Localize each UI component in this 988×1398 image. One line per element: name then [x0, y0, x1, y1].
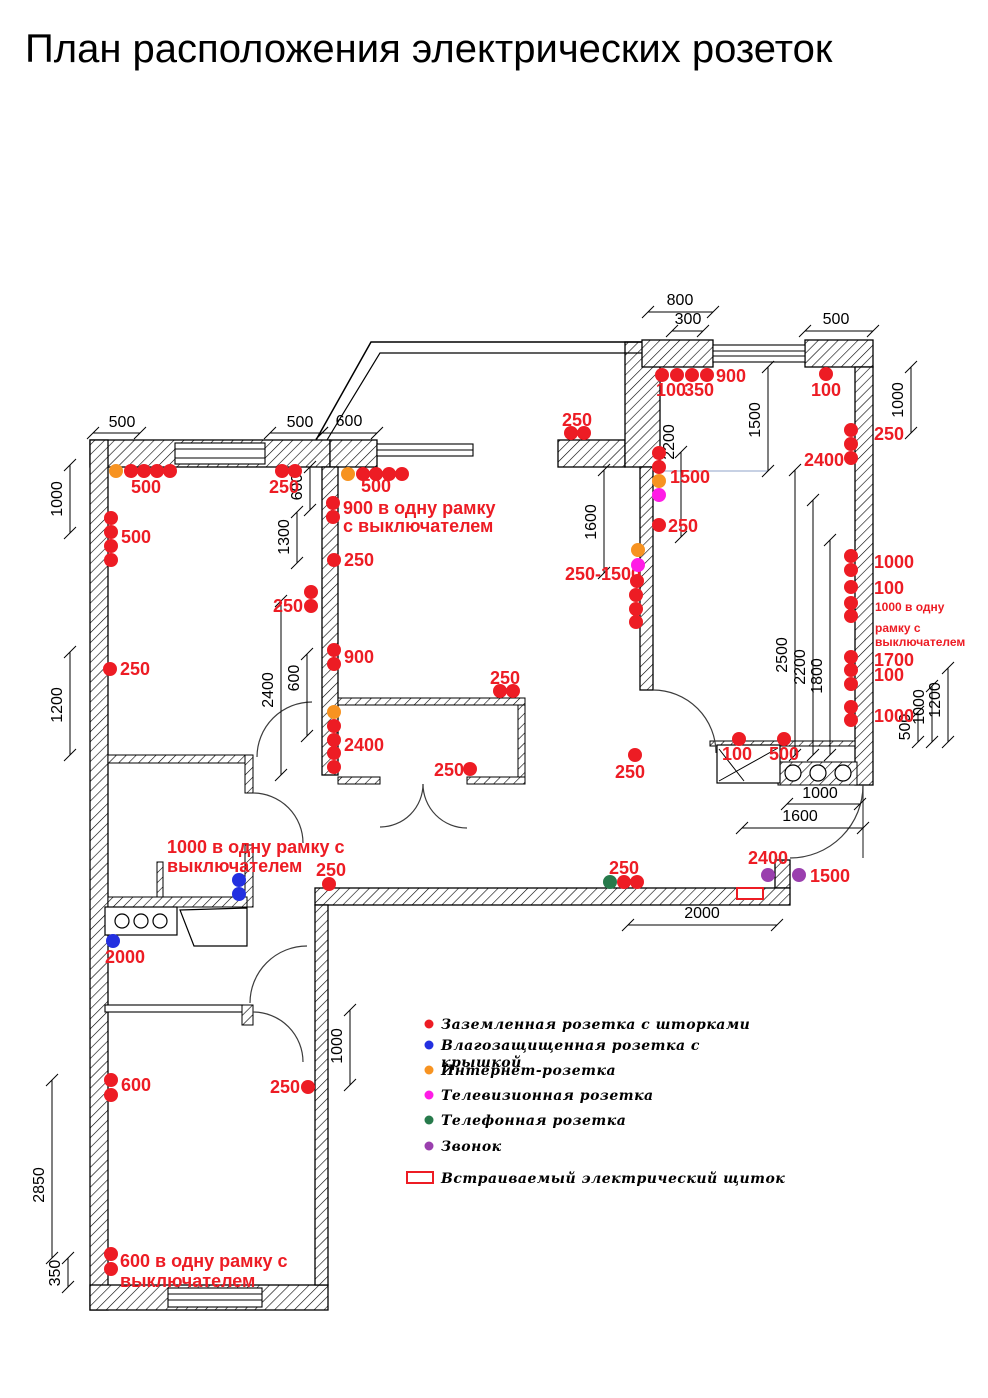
outlet-marker-grounded-socket: [652, 460, 666, 474]
door-arc: [257, 702, 312, 757]
wall-segment: [805, 340, 873, 367]
outlet-height-label: 1000 в одну рамку с: [167, 837, 345, 857]
balcony-outline: [316, 342, 642, 440]
outlet-marker-grounded-socket: [104, 1247, 118, 1261]
dimension-text: 1500: [747, 402, 764, 438]
outlet-marker-grounded-socket: [844, 650, 858, 664]
outlet-marker-grounded-socket: [124, 464, 138, 478]
outlet-marker-grounded-socket: [655, 368, 669, 382]
outlet-marker-grounded-socket: [326, 510, 340, 524]
balcony-outline-inner: [327, 353, 642, 440]
window: [713, 345, 805, 362]
outlet-height-label: 250: [316, 860, 346, 880]
legend-label: Встраиваемый электрический щиток: [440, 1170, 785, 1187]
outlet-marker-grounded-socket: [844, 437, 858, 451]
outlet-height-label: 900: [716, 366, 746, 386]
outlet-marker-grounded-socket: [577, 426, 591, 440]
wall-segment: [558, 440, 625, 467]
outlet-marker-grounded-socket: [104, 1088, 118, 1102]
outlet-height-label: 350: [684, 380, 714, 400]
outlet-marker-grounded-socket: [382, 467, 396, 481]
outlet-height-label: 250: [273, 596, 303, 616]
outlet-marker-internet-socket: [652, 474, 666, 488]
legend-swatch-phone-socket: [425, 1116, 434, 1125]
outlet-marker-grounded-socket: [844, 563, 858, 577]
outlet-marker-grounded-socket: [327, 746, 341, 760]
outlet-marker-grounded-socket: [327, 760, 341, 774]
outlet-marker-internet-socket: [327, 705, 341, 719]
dimension-text: 2200: [792, 649, 809, 685]
closet-wall: [518, 705, 525, 777]
door-arc: [653, 690, 716, 753]
outlet-marker-grounded-socket: [327, 733, 341, 747]
outlet-marker-grounded-socket: [163, 464, 177, 478]
legend-label: Телефонная розетка: [441, 1113, 626, 1129]
outlet-marker-internet-socket: [341, 467, 355, 481]
outlet-marker-grounded-socket: [356, 467, 370, 481]
dimension-text: 1000: [802, 785, 838, 802]
outlet-height-label: 250-1500: [565, 564, 641, 584]
legend: Заземленная розетка с шторкамиВлагозащищ…: [407, 1017, 785, 1187]
dimension-text: 600: [286, 665, 303, 692]
outlet-height-label: с выключателем: [343, 516, 493, 536]
dimension-text: 1000: [329, 1028, 346, 1064]
outlet-marker-grounded-socket: [104, 1262, 118, 1276]
outlet-marker-grounded-socket: [327, 643, 341, 657]
dimension-text: 500: [287, 414, 314, 431]
dimension-text: 1000: [890, 382, 907, 418]
dimension-text: 500: [109, 414, 136, 431]
outlet-marker-doorbell: [792, 868, 806, 882]
outlet-marker-grounded-socket: [777, 732, 791, 746]
wall-segment: [315, 905, 328, 1285]
outlet-height-label: 250: [120, 659, 150, 679]
outlet-marker-internet-socket: [631, 543, 645, 557]
outlet-marker-grounded-socket: [630, 875, 644, 889]
outlet-marker-grounded-socket: [493, 684, 507, 698]
dimension-text: 2500: [774, 637, 791, 673]
door-arc: [250, 946, 307, 1003]
outlet-marker-moisture-protected-socket: [232, 873, 246, 887]
dimension-text: 300: [675, 311, 702, 328]
outlet-marker-grounded-socket: [304, 599, 318, 613]
outlet-marker-grounded-socket: [506, 684, 520, 698]
closet-wall: [338, 777, 380, 784]
outlet-height-label: 500: [769, 744, 799, 764]
radiator-circle: [785, 765, 801, 781]
outlet-marker-phone-socket: [603, 875, 617, 889]
outlet-height-label: 600 в одну рамку с: [120, 1251, 288, 1271]
outlet-marker-grounded-socket: [617, 875, 631, 889]
page-title: План расположения электрических розеток: [25, 27, 833, 71]
outlet-marker-grounded-socket: [326, 496, 340, 510]
dimension-text: 1200: [927, 682, 944, 718]
wall-segment: [315, 888, 790, 905]
outlet-marker-tv-socket: [652, 488, 666, 502]
outlet-marker-moisture-protected-socket: [232, 887, 246, 901]
outlet-marker-grounded-socket: [327, 657, 341, 671]
outlet-height-label: 900 в одну рамку: [343, 498, 496, 518]
door-arc: [253, 793, 303, 843]
outlet-marker-grounded-socket: [288, 464, 302, 478]
stove-burner: [115, 914, 129, 928]
outlet-height-label: выключателем: [167, 856, 302, 876]
stove-burner: [153, 914, 167, 928]
outlet-height-label: 1500: [810, 866, 850, 886]
legend-swatch-grounded-socket: [425, 1020, 434, 1029]
outlet-height-label: выключателем: [120, 1271, 255, 1291]
outlet-height-label: 600: [121, 1075, 151, 1095]
outlet-marker-grounded-socket: [844, 713, 858, 727]
sink: [180, 908, 247, 946]
legend-swatch-moisture-protected-socket: [425, 1041, 434, 1050]
dimension-text: 1800: [809, 658, 826, 694]
window: [175, 443, 265, 464]
outlet-marker-grounded-socket: [844, 663, 858, 677]
dimension-text: 1000: [49, 481, 66, 517]
radiator-circle: [835, 765, 851, 781]
outlet-marker-tv-socket: [631, 558, 645, 572]
dimension-text: 800: [667, 292, 694, 309]
wall-stub: [157, 862, 163, 897]
outlet-marker-grounded-socket: [630, 574, 644, 588]
legend-label: Звонок: [441, 1139, 502, 1155]
dimension-text: 1300: [276, 519, 293, 555]
outlet-height-label: 250: [615, 762, 645, 782]
electrical-panel: [737, 888, 763, 899]
outlet-marker-grounded-socket: [137, 464, 151, 478]
outlet-marker-grounded-socket: [104, 525, 118, 539]
outlet-height-label: 2400: [804, 450, 844, 470]
double-door-arc: [423, 784, 467, 828]
wall-segment: [642, 340, 713, 367]
dimension-text: 1600: [782, 808, 818, 825]
outlet-marker-grounded-socket: [844, 549, 858, 563]
outlet-height-label: выключателем: [875, 635, 965, 649]
outlet-marker-grounded-socket: [844, 423, 858, 437]
outlet-marker-moisture-protected-socket: [106, 934, 120, 948]
outlet-marker-grounded-socket: [629, 615, 643, 629]
outlet-height-label: 250: [434, 760, 464, 780]
outlet-marker-grounded-socket: [629, 588, 643, 602]
outlet-marker-grounded-socket: [275, 464, 289, 478]
outlet-height-label: 250: [344, 550, 374, 570]
outlet-marker-grounded-socket: [844, 609, 858, 623]
outlet-height-label: 250: [270, 1077, 300, 1097]
outlet-marker-grounded-socket: [463, 762, 477, 776]
legend-label: Влагозащищенная розетка с: [440, 1038, 700, 1054]
door-arc: [253, 1012, 303, 1062]
outlet-height-label: 250: [668, 516, 698, 536]
outlet-marker-grounded-socket: [844, 451, 858, 465]
outlet-marker-grounded-socket: [104, 511, 118, 525]
outlet-marker-grounded-socket: [732, 732, 746, 746]
outlet-height-label: 100: [874, 665, 904, 685]
floor-plan: План расположения электрических розеток: [0, 0, 988, 1398]
partition: [105, 1005, 243, 1012]
outlet-height-label: 100: [722, 744, 752, 764]
legend-swatch-internet-socket: [425, 1066, 434, 1075]
outlet-marker-grounded-socket: [369, 467, 383, 481]
dimension-text: 350: [47, 1260, 64, 1287]
legend-panel-swatch: [407, 1172, 433, 1183]
outlet-marker-grounded-socket: [652, 446, 666, 460]
radiator-circle: [810, 765, 826, 781]
outlet-marker-grounded-socket: [844, 700, 858, 714]
outlet-marker-grounded-socket: [395, 467, 409, 481]
outlet-height-label: 500: [131, 477, 161, 497]
dimension-text: 600: [336, 413, 363, 430]
dimension-text: 1600: [583, 504, 600, 540]
outlet-marker-grounded-socket: [844, 596, 858, 610]
outlet-height-label: 100: [656, 380, 686, 400]
wall-segment: [90, 440, 108, 1310]
legend-label: Заземленная розетка с шторками: [441, 1017, 750, 1033]
outlet-marker-grounded-socket: [150, 464, 164, 478]
dimension-text: 2850: [31, 1167, 48, 1203]
outlet-height-label: 1500: [670, 467, 710, 487]
outlet-height-label: 100: [874, 578, 904, 598]
outlet-marker-grounded-socket: [685, 368, 699, 382]
stove-burner: [134, 914, 148, 928]
outlet-marker-grounded-socket: [103, 662, 117, 676]
outlet-height-label: 2400: [748, 848, 788, 868]
outlet-height-label: 100: [811, 380, 841, 400]
outlet-height-label: 1000: [874, 706, 914, 726]
legend-label: Телевизионная розетка: [441, 1088, 654, 1104]
outlet-marker-grounded-socket: [628, 748, 642, 762]
outlet-marker-grounded-socket: [819, 367, 833, 381]
outlet-height-label: рамку с: [875, 621, 921, 635]
outlet-height-label: 1000: [874, 552, 914, 572]
outlet-marker-grounded-socket: [327, 553, 341, 567]
outlet-marker-doorbell: [761, 868, 775, 882]
outlet-height-label: 900: [344, 647, 374, 667]
dimension-text: 1200: [49, 687, 66, 723]
dimension-text: 500: [823, 311, 850, 328]
dimension-text: 2000: [684, 905, 720, 922]
wall-segment: [245, 755, 253, 793]
outlet-marker-grounded-socket: [629, 602, 643, 616]
wall-segment: [108, 755, 247, 763]
outlet-height-label: 250: [269, 477, 299, 497]
outlet-marker-grounded-socket: [700, 368, 714, 382]
outlet-marker-grounded-socket: [104, 539, 118, 553]
outlet-marker-internet-socket: [109, 464, 123, 478]
legend-swatch-doorbell: [425, 1142, 434, 1151]
outlet-height-label: 500: [121, 527, 151, 547]
outlet-marker-grounded-socket: [104, 553, 118, 567]
outlet-marker-grounded-socket: [844, 677, 858, 691]
outlet-height-label: 250: [874, 424, 904, 444]
outlet-marker-grounded-socket: [301, 1080, 315, 1094]
outlet-marker-grounded-socket: [322, 877, 336, 891]
legend-swatch-tv-socket: [425, 1091, 434, 1100]
outlet-marker-grounded-socket: [670, 368, 684, 382]
walls-layer: [90, 340, 873, 1310]
wall-stub: [242, 1005, 253, 1025]
outlet-marker-grounded-socket: [844, 580, 858, 594]
outlet-marker-grounded-socket: [327, 719, 341, 733]
closet-wall: [338, 698, 525, 705]
wall-segment: [108, 897, 247, 907]
outlet-height-label: 2400: [344, 735, 384, 755]
double-door-arc: [380, 784, 423, 827]
outlet-marker-grounded-socket: [652, 518, 666, 532]
legend-label: Интернет-розетка: [440, 1063, 616, 1079]
dimension-text: 2400: [260, 672, 277, 708]
outlet-marker-grounded-socket: [304, 585, 318, 599]
outlet-height-label: 2000: [105, 947, 145, 967]
outlet-marker-grounded-socket: [104, 1073, 118, 1087]
outlet-marker-grounded-socket: [564, 426, 578, 440]
outlet-height-label: 1000 в одну: [875, 600, 945, 614]
wall-segment: [330, 440, 377, 467]
closet-wall: [467, 777, 525, 784]
